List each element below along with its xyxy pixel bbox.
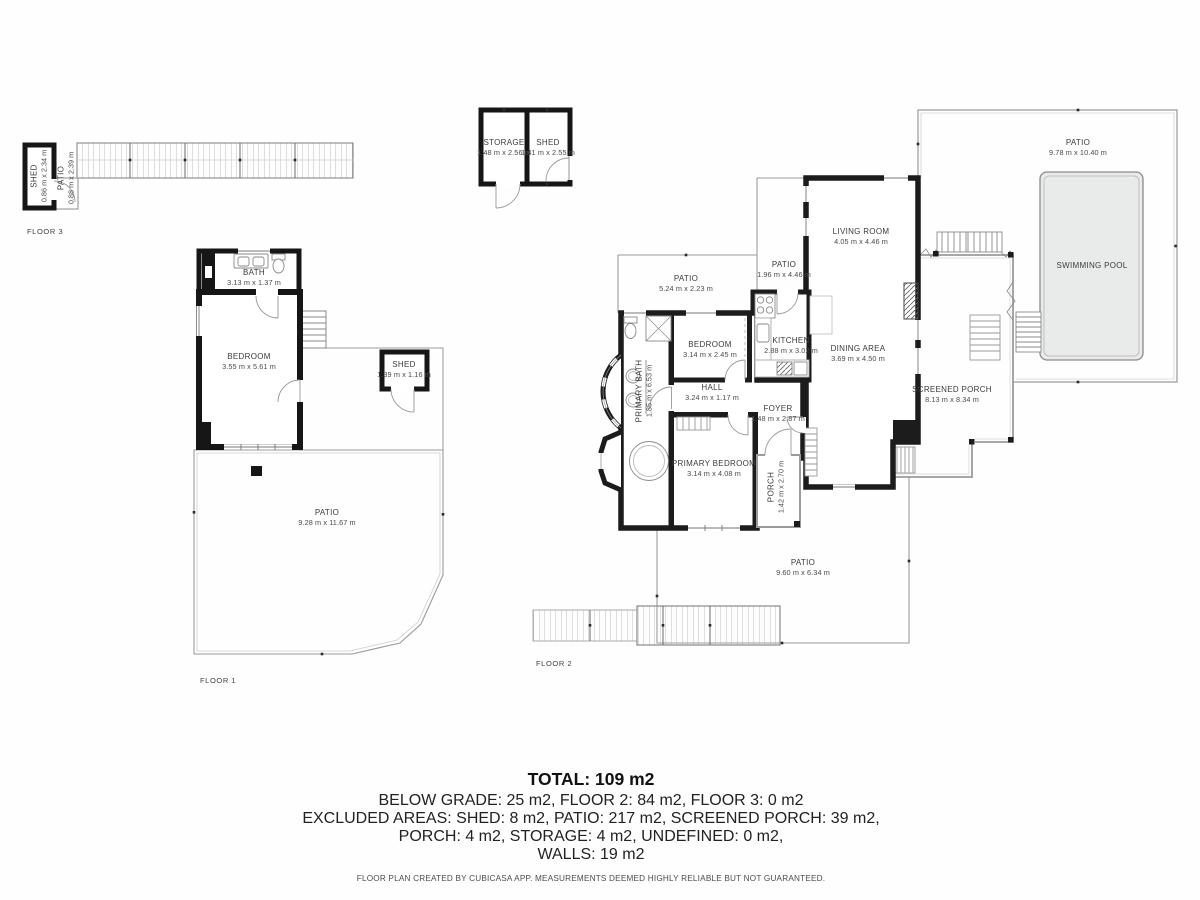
floor3-caption: FLOOR 3 (27, 227, 63, 236)
room-dims: 9.60 m x 6.34 m (776, 568, 830, 578)
floor1-plan (193, 248, 445, 655)
room-name: PATIO (757, 260, 811, 270)
room-name: SCREENED PORCH (912, 385, 992, 395)
summary-line-excluded: EXCLUDED AREAS: SHED: 8 m2, PATIO: 217 m… (0, 810, 1182, 828)
summary-line-porch-storage: PORCH: 4 m2, STORAGE: 4 m2, UNDEFINED: 0… (0, 828, 1182, 846)
room-name: PRIMARY BATH (635, 360, 645, 423)
room-name: SHED (377, 360, 431, 370)
room-name: LIVING ROOM (833, 227, 890, 237)
floor1-caption: FLOOR 1 (200, 676, 236, 685)
room-dims: 5.24 m x 2.23 m (659, 284, 713, 294)
room-dims: 3.55 m x 5.61 m (222, 362, 276, 372)
summary-line-walls: WALLS: 19 m2 (0, 846, 1182, 864)
room-name: PATIO (1049, 138, 1107, 148)
room-label-f2-kitchen: KITCHEN 2.88 m x 3.02 m (764, 336, 818, 355)
room-label-ob-shed: SHED 1.41 m x 2.55 m (521, 138, 575, 157)
floorplan-page: SHED 0.86 m x 2.34 m PATIO 0.88 m x 2.39… (0, 0, 1200, 900)
room-name: BEDROOM (222, 352, 276, 362)
room-dims: 9.28 m x 11.67 m (298, 518, 355, 528)
room-dims: 1.41 m x 2.55 m (521, 148, 575, 158)
room-name: PATIO (659, 274, 713, 284)
room-dims: 1.96 m x 4.46 m (757, 270, 811, 280)
summary-total: TOTAL: 109 m2 (0, 769, 1182, 790)
room-label-f2-primary-bath: PRIMARY BATH 1.85 m x 6.53 m (635, 360, 654, 423)
room-label-f2-patio-top: PATIO 5.24 m x 2.23 m (659, 274, 713, 293)
room-label-f2-primary-bedroom: PRIMARY BEDROOM 3.14 m x 4.08 m (672, 459, 756, 478)
room-dims: 3.13 m x 1.37 m (227, 278, 281, 288)
room-dims: 9.78 m x 10.40 m (1049, 148, 1107, 158)
room-name: BEDROOM (683, 340, 737, 350)
room-name: PATIO (298, 508, 355, 518)
room-name: FOYER (751, 404, 805, 414)
room-label-f2-pool-patio: PATIO 9.78 m x 10.40 m (1049, 138, 1107, 157)
room-dims: 1.48 m x 2.87 m (751, 414, 805, 424)
room-label-f1-patio: PATIO 9.28 m x 11.67 m (298, 508, 355, 527)
room-name: SHED (521, 138, 575, 148)
room-name: PRIMARY BEDROOM (672, 459, 756, 469)
room-dims: 2.88 m x 3.02 m (764, 346, 818, 356)
room-dims: 3.14 m x 4.08 m (672, 469, 756, 479)
room-dims: 8.13 m x 8.34 m (912, 395, 992, 405)
room-label-f3-patio: PATIO 0.88 m x 2.39 m (57, 152, 76, 204)
room-name: PORCH (767, 461, 777, 513)
room-label-f2-porch: PORCH 1.42 m x 2.70 m (767, 461, 786, 513)
room-dims: 0.86 m x 2.34 m (39, 150, 49, 202)
room-name: PATIO (776, 558, 830, 568)
room-name: HALL (685, 383, 739, 393)
room-label-f2-living: LIVING ROOM 4.05 m x 4.46 m (833, 227, 890, 246)
room-label-f1-bath: BATH 3.13 m x 1.37 m (227, 268, 281, 287)
room-label-f2-pool: SWIMMING POOL (1056, 261, 1127, 271)
room-label-f1-bedroom: BEDROOM 3.55 m x 5.61 m (222, 352, 276, 371)
room-dims: 3.69 m x 4.50 m (831, 354, 886, 364)
room-name: SHED (30, 150, 40, 202)
floor2-deck (533, 606, 780, 645)
room-label-f2-foyer: FOYER 1.48 m x 2.87 m (751, 404, 805, 423)
room-dims: 4.05 m x 4.46 m (833, 237, 890, 247)
room-label-f2-bedroom: BEDROOM 3.14 m x 2.45 m (683, 340, 737, 359)
room-dims: 1.42 m x 2.70 m (776, 461, 786, 513)
room-label-f2-patio-bottom: PATIO 9.60 m x 6.34 m (776, 558, 830, 577)
summary-footer-disclaimer: FLOOR PLAN CREATED BY CUBICASA APP. MEAS… (0, 874, 1182, 883)
room-label-f2-screened-porch: SCREENED PORCH 8.13 m x 8.34 m (912, 385, 992, 404)
room-name: BATH (227, 268, 281, 278)
room-dims: 1.85 m x 6.53 m (644, 360, 654, 423)
room-name: KITCHEN (764, 336, 818, 346)
room-label-f3-shed: SHED 0.86 m x 2.34 m (30, 150, 49, 202)
outbuilding-plan (481, 109, 573, 208)
floorplan-drawing (0, 0, 1200, 900)
floor2-caption: FLOOR 2 (536, 659, 572, 668)
room-dims: 3.14 m x 2.45 m (683, 350, 737, 360)
room-name: SWIMMING POOL (1056, 261, 1127, 271)
room-dims: 3.24 m x 1.17 m (685, 393, 739, 403)
room-name: DINING AREA (831, 344, 886, 354)
room-dims: 0.88 m x 2.39 m (66, 152, 76, 204)
room-label-f2-dining: DINING AREA 3.69 m x 4.50 m (831, 344, 886, 363)
room-label-f2-hall: HALL 3.24 m x 1.17 m (685, 383, 739, 402)
room-dims: 1.39 m x 1.16 m (377, 370, 431, 380)
room-name: PATIO (57, 152, 67, 204)
summary-line-grades: BELOW GRADE: 25 m2, FLOOR 2: 84 m2, FLOO… (0, 792, 1182, 810)
room-label-f2-patio-side: PATIO 1.96 m x 4.46 m (757, 260, 811, 279)
room-label-f1-shed: SHED 1.39 m x 1.16 m (377, 360, 431, 379)
